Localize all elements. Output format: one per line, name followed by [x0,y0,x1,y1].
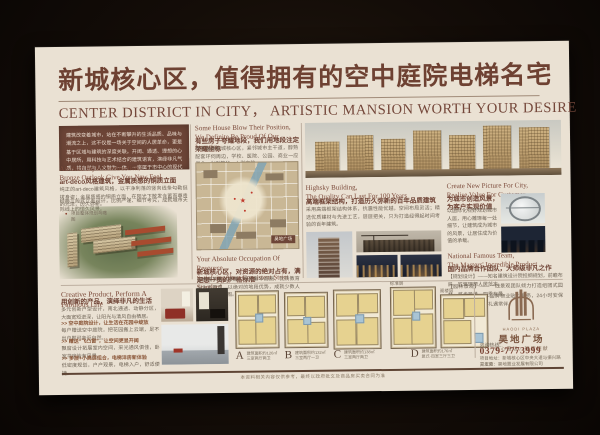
room [238,320,256,345]
plan-type: 三室两厅一卫 [295,355,326,361]
real-estate-poster: 新城核心区，值得拥有的空中庭院电梯名宅 CENTER DISTRICT IN C… [35,41,573,395]
plan-sub: 建筑面积约138㎡ 三室两厅两卫 [344,349,375,360]
panorama-tower [413,130,441,170]
floorplan-B [284,292,329,349]
window [199,292,209,309]
floorplan-B-label: B 建筑面积约132㎡ 三室两厅一卫 [285,350,326,362]
map-marker-dot [234,198,236,200]
red-accent [174,348,183,352]
globe-sculpture-photo [501,193,545,224]
panorama-podium [305,168,561,178]
room [443,320,471,344]
room [336,320,357,345]
location-map: ★ 昊地广场 [195,161,299,250]
room [257,294,276,313]
map-block [210,224,226,233]
plan-letter: D [411,349,419,360]
map-project-label: 昊地广场 [271,235,295,244]
tower-photo-building [318,237,340,278]
floorplan-A-label: A 建筑面积约126㎡ 三室两厅两卫 [236,350,278,362]
plan-type: 三室两厅两卫 [247,356,278,362]
haodi-plaza-logo-icon [503,289,539,321]
room [287,296,306,317]
bath [255,314,263,323]
crane-mast [373,235,374,241]
aerial-render-image: ● 项目整体规划鸟瞰图 [59,206,178,279]
room [308,322,326,344]
floorplan-D-lower [390,286,437,349]
aerial-caption-marker: ● [65,211,67,216]
building-panorama-image [305,120,562,178]
aerial-tower [67,232,77,267]
room [443,298,465,320]
interior-photo-living [161,288,193,321]
plan-sub: 建筑面积约176㎡ 复式·四室三厅三卫 [422,348,455,359]
panorama-tower [315,142,339,172]
poster-photo-background: 新城核心区，值得拥有的空中庭院电梯名宅 CENTER DISTRICT IN C… [0,0,600,435]
map-marker-dot [244,210,246,212]
main-title-english: CENTER DISTRICT IN CITY， ARTISTIC MANSIO… [59,101,577,122]
night-lights [401,264,442,277]
crane-icon [361,234,408,236]
plan-letter: A [236,351,244,362]
newpicture-body: 以国际化视野规划城市人居，用心雕琢每一处细节，让建筑成为城市的风景，让居住成为价… [447,208,497,246]
aerial-caption: 项目整体规划鸟瞰图 [71,210,111,223]
column-divider-2 [301,123,304,278]
night-lights [357,265,398,278]
window [182,292,190,307]
map-block [270,219,286,227]
city-skyline-photo [501,226,545,253]
floorplan-D-label: D 建筑面积约176㎡ 复式·四室三厅三卫 [411,348,455,360]
bath [304,317,312,326]
panorama-tower [483,125,512,169]
map-block [203,170,217,178]
map-block [265,173,283,180]
construction-photo [356,230,441,252]
interior-photo-study [196,288,228,321]
map-marker-dot [251,192,253,194]
aerial-roof-row-2 [131,237,171,247]
plan-sub: 建筑面积约132㎡ 三室两厅一卫 [295,350,326,361]
aerial-roof-row-3 [137,248,173,257]
room [336,293,359,316]
plan-type: 复式·四室三厅三卫 [422,354,455,360]
map-project-star-icon: ★ [240,198,246,205]
panorama-tower [519,127,550,169]
bath [412,312,420,321]
floorplan-C-label: C 建筑面积约138㎡ 三室两厅两卫 [334,349,375,361]
plan-letter: C [334,350,341,361]
highsky-body: 采用高端框架结构体系，抗震性能优越，空间布局灵活；精选优质建材与先进工艺，层层把… [306,205,440,229]
floorplan-A [235,290,280,349]
plan-letter: B [285,350,292,361]
panorama-tower [347,135,373,171]
map-block [236,232,256,239]
floorplan-C [333,289,382,350]
night-view-photo-2 [400,254,441,276]
tower-photo [306,231,353,278]
panorama-tower [381,139,405,171]
aerial-roof-row-1 [125,226,165,236]
room [358,293,379,314]
night-view-photo-1 [356,255,397,277]
room [305,295,326,318]
bath [355,315,364,324]
plan-type: 三室两厅两卫 [344,355,375,361]
interior-photo-modern-living [161,324,228,365]
red-sofa [165,308,185,319]
panorama-tower [449,135,475,170]
room [393,317,413,344]
dark-column [218,326,225,354]
plan-sub: 建筑面积约126㎡ 三室两厅两卫 [247,350,278,361]
main-title-chinese: 新城核心区，值得拥有的空中庭院电梯名宅 [58,63,552,94]
desk [210,309,225,318]
column-divider-1 [190,124,193,279]
room [414,290,434,310]
